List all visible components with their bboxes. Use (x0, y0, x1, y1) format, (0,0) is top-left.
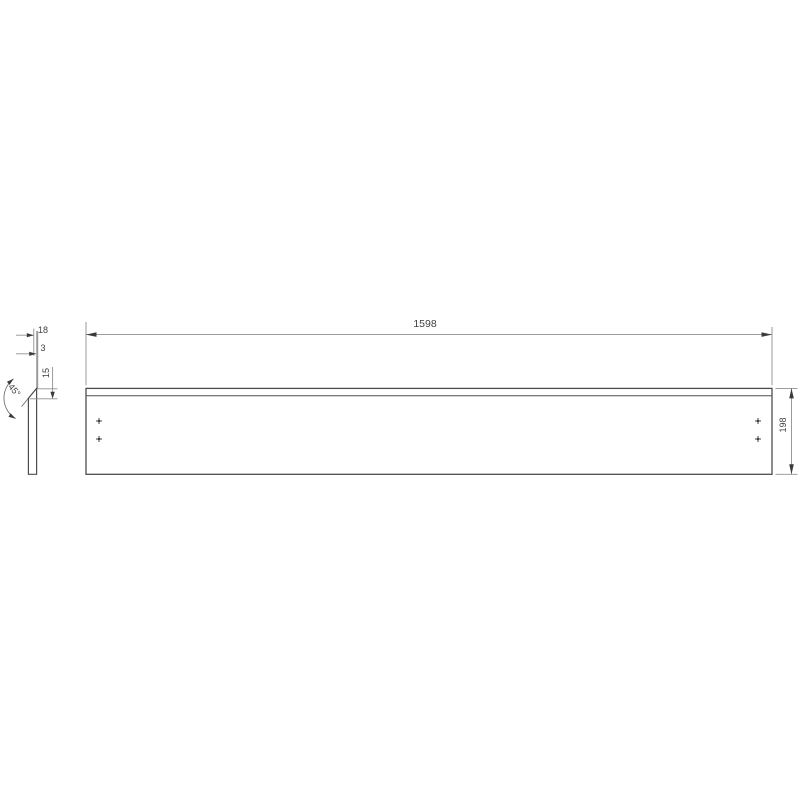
front-view-panel-outline (86, 388, 772, 474)
arrow-up-icon (789, 388, 794, 398)
side-view-profile-outline (28, 388, 36, 474)
dim-height-label: 198 (778, 410, 790, 440)
technical-drawing-canvas: 1598 198 18 3 15 45° (0, 0, 800, 800)
edge-strip-lines (36, 331, 38, 389)
dim-chamfer-height-label: 15 (41, 363, 53, 383)
dim-thickness (16, 329, 34, 357)
arrow-right-icon (762, 332, 773, 337)
dim-edge (16, 352, 36, 356)
front-view (86, 388, 772, 474)
dim-length-label: 1598 (405, 319, 445, 330)
arrow-left-icon (86, 332, 97, 337)
dim-thickness-label: 18 (36, 325, 50, 336)
drawing-linework (0, 0, 800, 800)
arrow-right-icon (27, 333, 34, 337)
dim-edge-label: 3 (39, 343, 47, 354)
arrow-right-icon (29, 352, 36, 356)
arrow-down-icon (50, 392, 54, 399)
dim-length (86, 322, 772, 385)
arrow-down-icon (789, 464, 794, 474)
